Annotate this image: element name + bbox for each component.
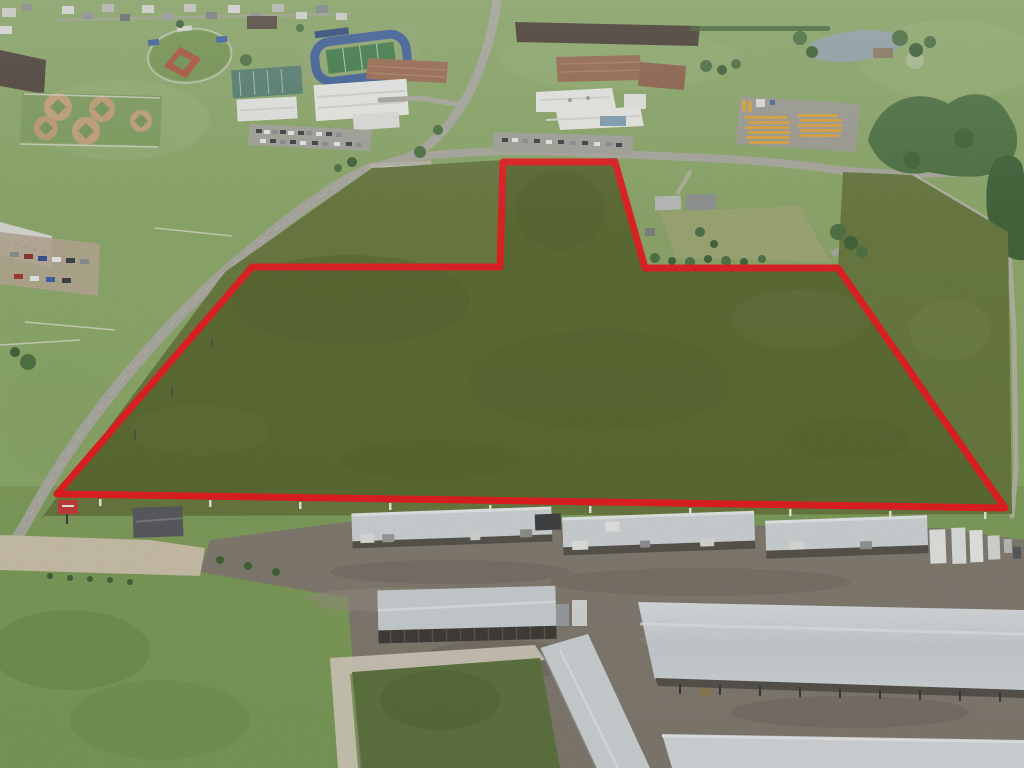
- photo-grain: [0, 0, 1024, 768]
- aerial-photo-stage: [0, 0, 1024, 768]
- aerial-photo: [0, 0, 1024, 768]
